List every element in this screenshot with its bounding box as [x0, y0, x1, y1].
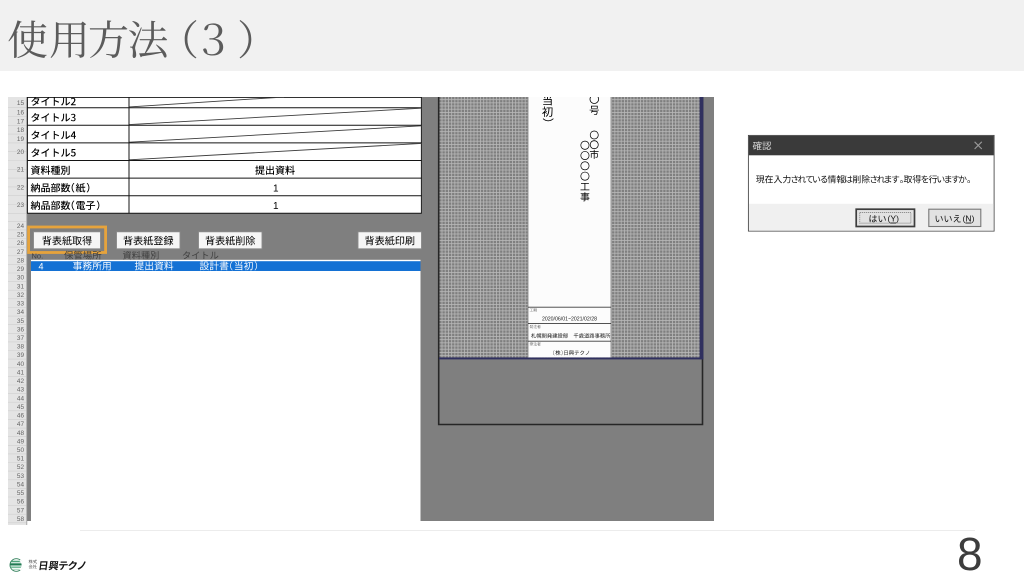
svg-text:17: 17: [17, 118, 25, 125]
svg-text:49: 49: [17, 438, 25, 445]
svg-text:29: 29: [17, 266, 25, 273]
svg-text:16: 16: [17, 110, 25, 117]
svg-text:37: 37: [17, 335, 25, 342]
svg-text:20: 20: [17, 149, 25, 156]
svg-text:47: 47: [17, 421, 25, 428]
svg-text:59: 59: [17, 525, 25, 526]
svg-text:40: 40: [17, 361, 25, 368]
svg-text:25: 25: [17, 232, 25, 239]
svg-text:58: 58: [17, 516, 25, 523]
svg-text:53: 53: [17, 473, 25, 480]
svg-text:(Y): (Y): [888, 214, 900, 224]
svg-text:23: 23: [17, 202, 25, 209]
svg-text:52: 52: [17, 464, 25, 471]
svg-text:22: 22: [17, 184, 25, 191]
svg-text:42: 42: [17, 378, 25, 385]
svg-text:28: 28: [17, 258, 25, 265]
svg-text:21: 21: [17, 167, 25, 174]
svg-text:38: 38: [17, 344, 25, 351]
svg-text:24: 24: [17, 223, 25, 230]
svg-text:48: 48: [17, 430, 25, 437]
svg-text:32: 32: [17, 292, 25, 299]
svg-text:31: 31: [17, 283, 25, 290]
svg-text:44: 44: [17, 395, 25, 402]
svg-text:56: 56: [17, 499, 25, 506]
svg-text:45: 45: [17, 404, 25, 411]
svg-text:2020/06/01~2021/02/28: 2020/06/01~2021/02/28: [542, 317, 597, 323]
svg-text:46: 46: [17, 413, 25, 420]
svg-text:34: 34: [17, 309, 25, 316]
svg-text:35: 35: [17, 318, 25, 325]
svg-text:57: 57: [17, 507, 25, 514]
svg-text:39: 39: [17, 352, 25, 359]
svg-text:1: 1: [273, 184, 279, 195]
svg-text:18: 18: [17, 127, 25, 134]
svg-text:51: 51: [17, 456, 25, 463]
svg-text:55: 55: [17, 490, 25, 497]
svg-text:41: 41: [17, 370, 25, 377]
svg-text:30: 30: [17, 275, 25, 282]
svg-text:33: 33: [17, 301, 25, 308]
svg-text:54: 54: [17, 481, 25, 488]
svg-text:No.: No.: [32, 252, 44, 261]
svg-text:26: 26: [17, 240, 25, 247]
svg-text:1: 1: [273, 201, 279, 212]
svg-text:19: 19: [17, 136, 25, 143]
svg-text:4: 4: [38, 261, 43, 271]
svg-text:36: 36: [17, 326, 25, 333]
svg-text:27: 27: [17, 249, 25, 256]
svg-text:50: 50: [17, 447, 25, 454]
svg-text:(N): (N): [963, 214, 975, 224]
svg-text:15: 15: [17, 100, 25, 107]
svg-text:43: 43: [17, 387, 25, 394]
